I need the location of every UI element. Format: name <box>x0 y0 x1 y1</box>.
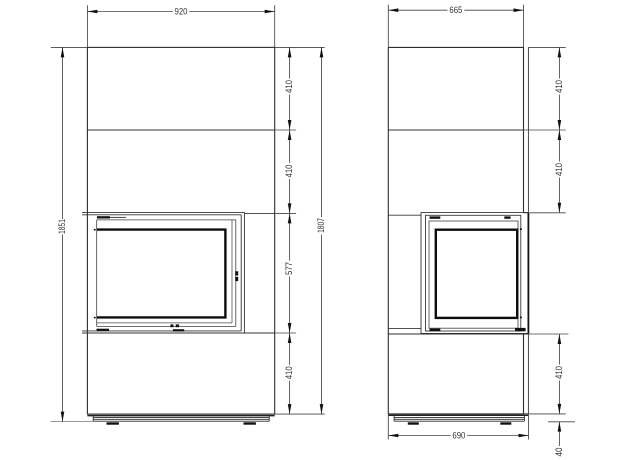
svg-text:920: 920 <box>175 7 188 17</box>
svg-text:665: 665 <box>449 5 462 15</box>
svg-text:410: 410 <box>554 80 564 93</box>
svg-text:1851: 1851 <box>57 219 67 234</box>
svg-text:1807: 1807 <box>316 218 326 233</box>
svg-text:410: 410 <box>284 366 294 379</box>
svg-text:577: 577 <box>284 262 294 275</box>
svg-text:690: 690 <box>452 431 465 441</box>
svg-text:410: 410 <box>284 165 294 178</box>
svg-text:410: 410 <box>554 366 564 379</box>
svg-text:410: 410 <box>284 80 294 93</box>
svg-text:40: 40 <box>554 448 564 457</box>
svg-text:410: 410 <box>554 163 564 176</box>
